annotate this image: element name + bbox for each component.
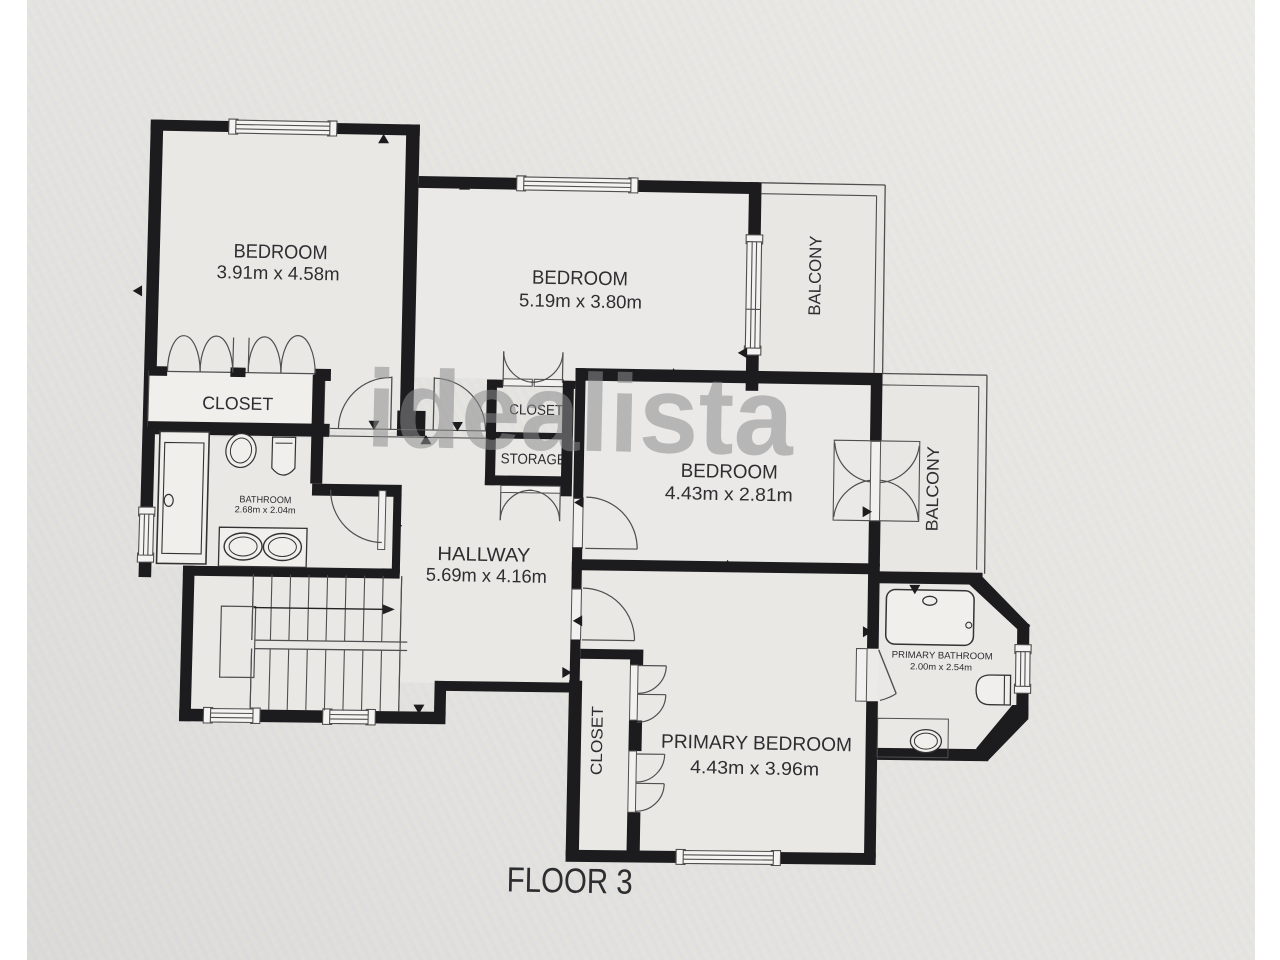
svg-text:5.19m x 3.80m: 5.19m x 3.80m (519, 289, 642, 312)
svg-text:BEDROOM: BEDROOM (233, 240, 327, 264)
svg-text:BALCONY: BALCONY (805, 235, 826, 315)
svg-text:3.91m x 4.58m: 3.91m x 4.58m (216, 261, 339, 284)
svg-text:FLOOR 3: FLOOR 3 (506, 860, 633, 901)
svg-text:PRIMARY BEDROOM: PRIMARY BEDROOM (661, 731, 852, 757)
svg-text:2.00m x 2.54m: 2.00m x 2.54m (910, 661, 972, 672)
svg-text:CLOSET: CLOSET (202, 393, 273, 414)
svg-text:BALCONY: BALCONY (922, 446, 943, 531)
svg-text:4.43m x 3.96m: 4.43m x 3.96m (690, 756, 819, 779)
svg-text:BEDROOM: BEDROOM (532, 267, 628, 291)
svg-text:idealista: idealista (365, 347, 795, 479)
svg-text:CLOSET: CLOSET (589, 706, 607, 776)
svg-text:5.69m x 4.16m: 5.69m x 4.16m (426, 564, 547, 587)
svg-text:2.68m x 2.04m: 2.68m x 2.04m (235, 504, 296, 515)
svg-text:4.43m x 2.81m: 4.43m x 2.81m (665, 482, 793, 505)
svg-text:PRIMARY BATHROOM: PRIMARY BATHROOM (892, 650, 993, 663)
